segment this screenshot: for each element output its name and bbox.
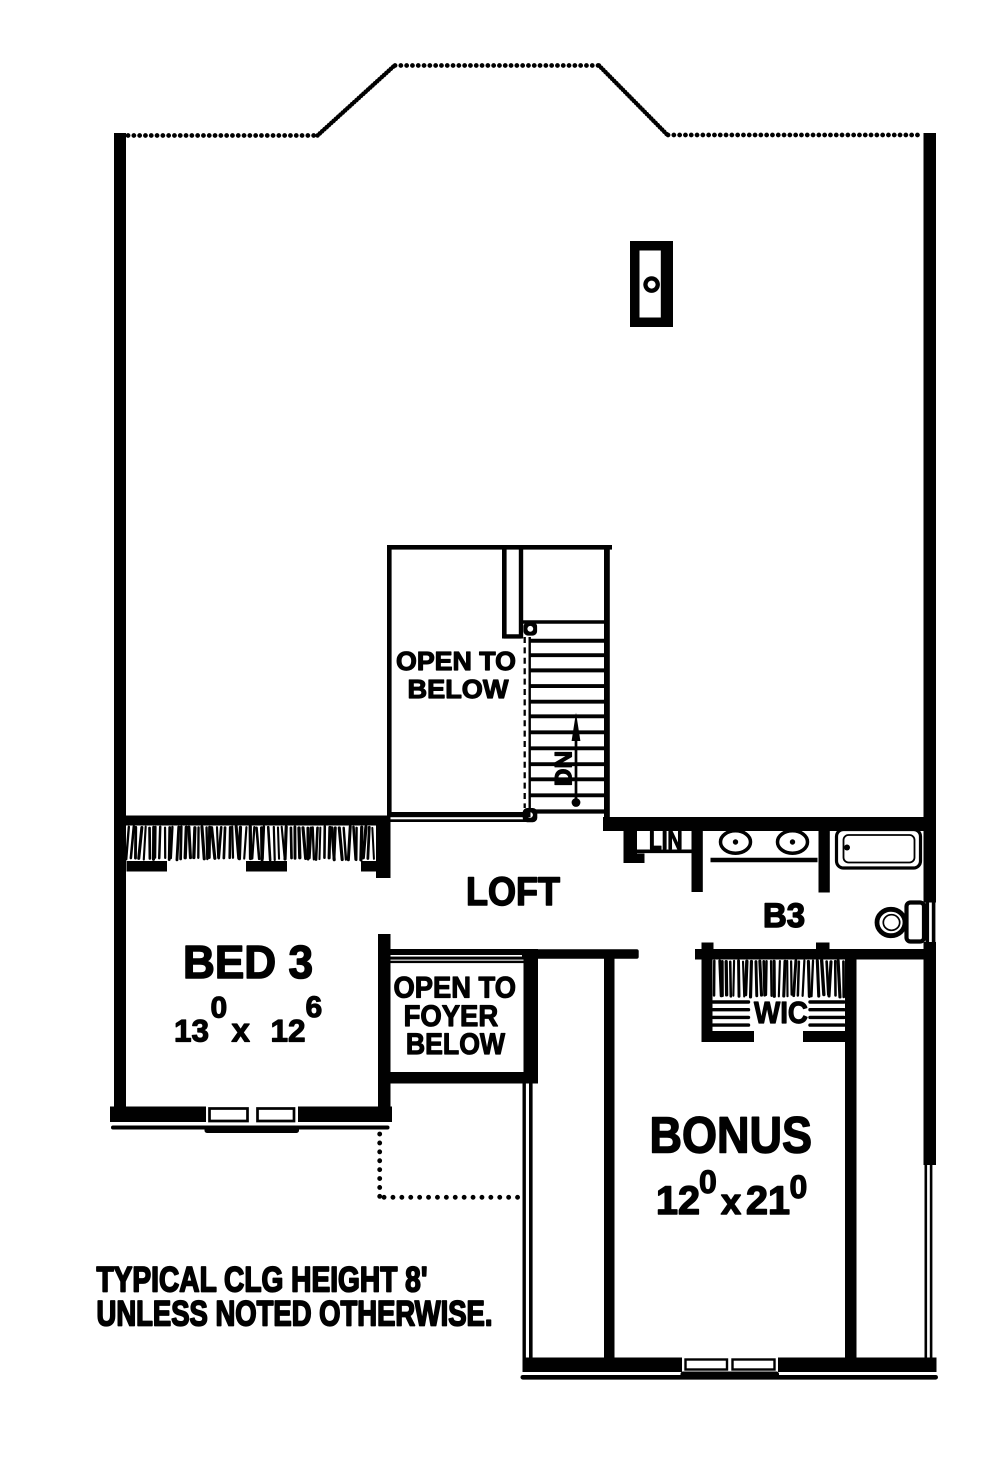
svg-text:UNLESS NOTED OTHERWISE.: UNLESS NOTED OTHERWISE. bbox=[97, 1295, 493, 1334]
svg-text:0: 0 bbox=[699, 1164, 717, 1200]
svg-text:12: 12 bbox=[271, 1013, 306, 1049]
svg-text:BONUS: BONUS bbox=[650, 1107, 813, 1164]
svg-text:13: 13 bbox=[174, 1013, 209, 1049]
svg-text:6: 6 bbox=[306, 991, 323, 1024]
svg-text:OPEN TO: OPEN TO bbox=[396, 646, 516, 676]
svg-text:LIN: LIN bbox=[649, 827, 683, 855]
svg-text:LOFT: LOFT bbox=[466, 870, 560, 914]
svg-text:x: x bbox=[721, 1181, 741, 1222]
svg-text:21: 21 bbox=[746, 1179, 790, 1223]
svg-text:12: 12 bbox=[656, 1179, 700, 1223]
svg-text:BED 3: BED 3 bbox=[183, 936, 313, 988]
svg-text:BELOW: BELOW bbox=[408, 674, 509, 704]
svg-text:0: 0 bbox=[790, 1169, 808, 1205]
svg-text:WIC: WIC bbox=[754, 996, 808, 1030]
svg-text:DN: DN bbox=[551, 751, 578, 786]
svg-text:x: x bbox=[232, 1012, 251, 1049]
svg-text:BELOW: BELOW bbox=[406, 1028, 506, 1061]
svg-text:0: 0 bbox=[211, 992, 228, 1025]
svg-text:B3: B3 bbox=[763, 897, 805, 935]
